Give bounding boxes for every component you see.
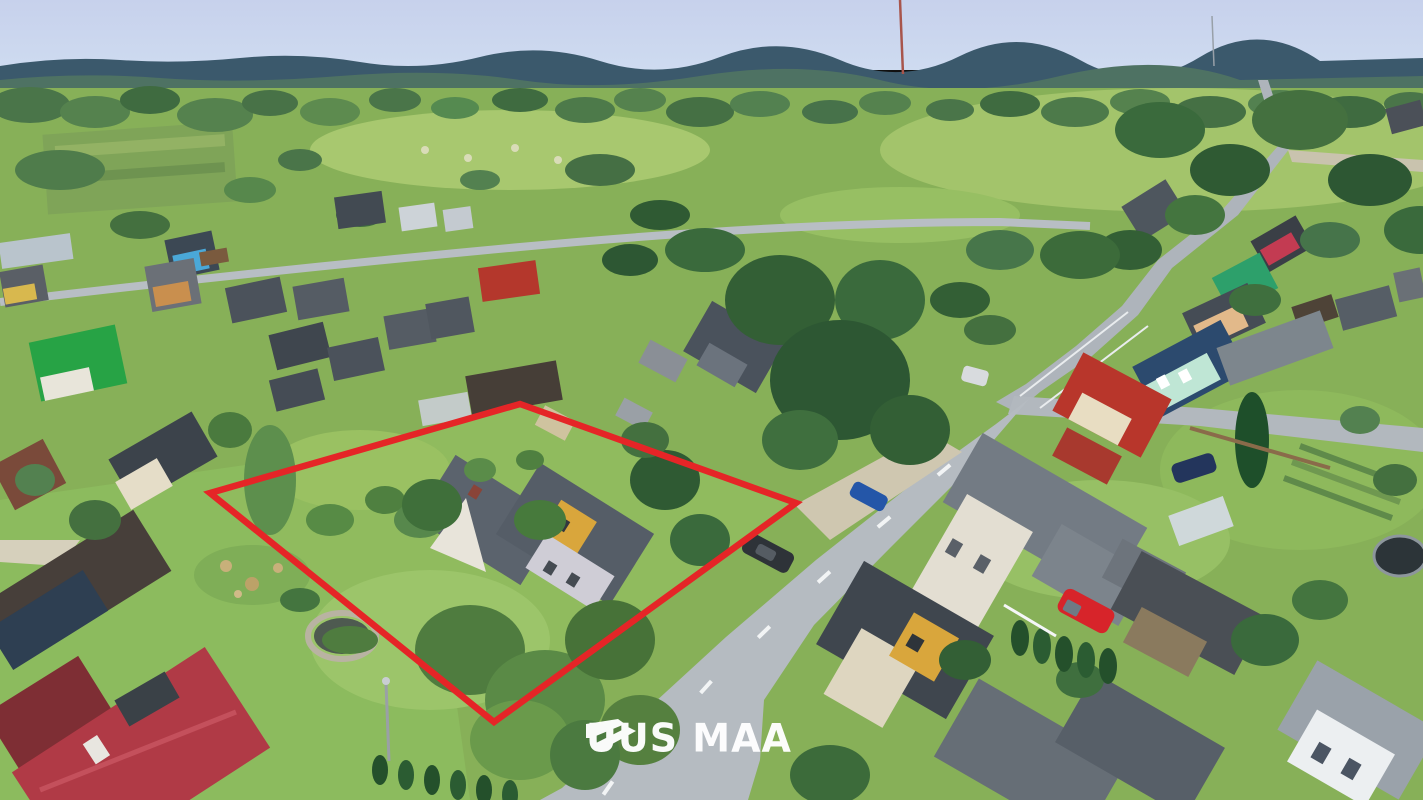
aerial-photo-scene: UUS MAA bbox=[0, 0, 1423, 800]
aerial-photo-artwork bbox=[0, 0, 1423, 800]
